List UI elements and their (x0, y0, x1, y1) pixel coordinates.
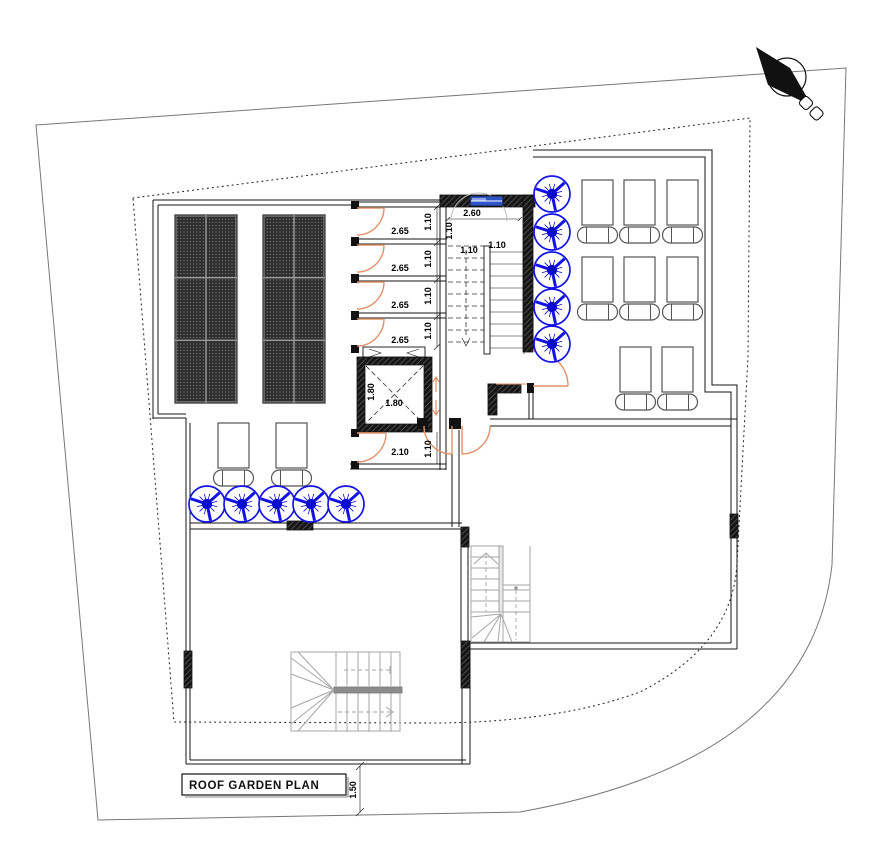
dimension-label: 1.10 (423, 250, 433, 268)
solar-panel-group (175, 215, 237, 403)
sun-lounger-icon (578, 180, 618, 243)
site-boundary (36, 68, 846, 820)
door-arc (357, 245, 384, 272)
stair-below-center (471, 546, 530, 642)
plant-icon (224, 486, 260, 522)
dimension-label: 2.65 (391, 263, 409, 273)
dimension-labels: 2.652.652.652.651.101.101.101.102.601.10… (348, 208, 506, 799)
plant-icon (534, 214, 570, 250)
door-arc (357, 282, 384, 309)
stair-window (470, 196, 503, 206)
column (730, 514, 738, 538)
solar-panel-group (263, 215, 325, 403)
dimension-label: 1.50 (348, 781, 358, 799)
elevator-arrows (433, 377, 439, 415)
dimension-label: 1.10 (423, 287, 433, 305)
dimension-label: 1.10 (423, 440, 433, 458)
elevator-door (363, 347, 425, 357)
door-arc (357, 433, 386, 462)
sun-lounger-icon (663, 257, 703, 320)
plant-icon (534, 326, 570, 362)
plant-icon (189, 486, 225, 522)
door-arc (462, 426, 490, 454)
door-arc (357, 319, 384, 346)
dimension-label: 1.10 (423, 213, 433, 231)
dimension-label: 1.80 (385, 398, 403, 408)
column (461, 641, 470, 688)
sun-lounger-icon (578, 257, 618, 320)
setback-dotted-line (133, 118, 750, 723)
sun-lounger-icon (620, 180, 660, 243)
sun-lounger-icon (272, 423, 312, 486)
plant-icon (293, 486, 329, 522)
north-arrow-icon (756, 47, 824, 121)
sun-lounger-icon (658, 347, 698, 410)
plant-icon (328, 486, 364, 522)
roof-garden-plan-canvas: 2.652.652.652.651.101.101.101.102.601.10… (0, 0, 882, 842)
door-arc (357, 208, 384, 235)
stair-below-left (291, 652, 402, 731)
plant-icon (534, 176, 570, 212)
plant-icon (534, 289, 570, 325)
plant-icon (534, 252, 570, 288)
dimension-label: 1.10 (444, 222, 454, 240)
dimension-label: 1.10 (488, 240, 506, 250)
solar-panel-array (175, 215, 325, 403)
dimension-label: 2.65 (391, 335, 409, 345)
sun-lounger-icon (214, 423, 254, 486)
dimension-label: 2.65 (391, 300, 409, 310)
dimension-label: 1.80 (366, 383, 376, 401)
dimension-label: 2.60 (463, 208, 481, 218)
stair-terrace-wall (523, 195, 533, 352)
column (461, 527, 469, 547)
dimension-label: 2.10 (391, 447, 409, 457)
sun-lounger-icon (616, 347, 656, 410)
sun-lounger-icon (620, 257, 660, 320)
plant-icon (259, 486, 295, 522)
dimension-label: 2.65 (391, 226, 409, 236)
sun-lounger-icon (663, 180, 703, 243)
column (184, 651, 192, 688)
dimension-label: 1.10 (460, 245, 478, 255)
plan-title: ROOF GARDEN PLAN (189, 780, 319, 792)
dimension-label: 1.10 (423, 322, 433, 340)
title-block: ROOF GARDEN PLAN (182, 774, 348, 797)
